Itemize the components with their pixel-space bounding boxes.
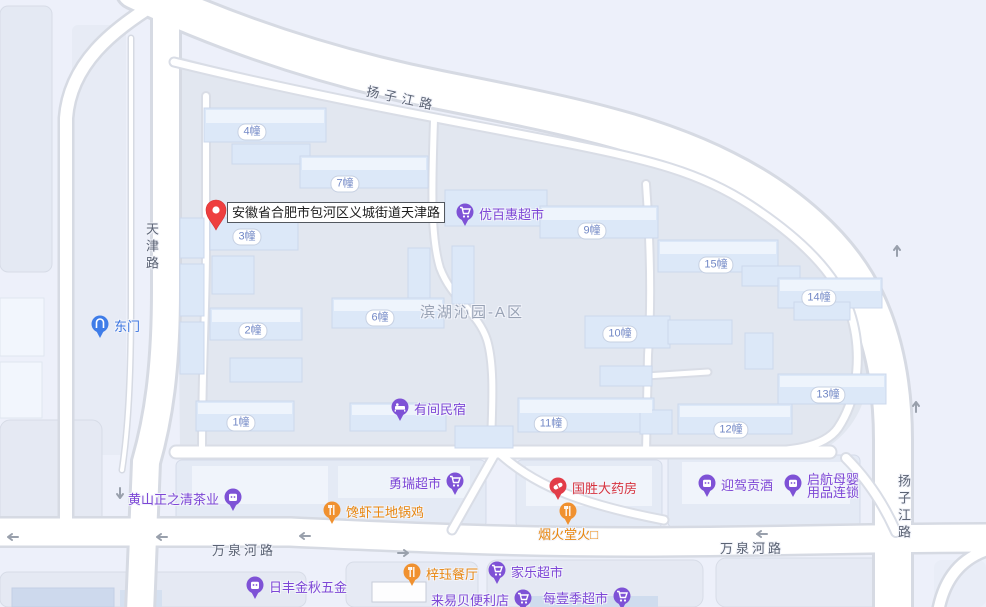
poi-huangshan-tea[interactable]: 黄山正之清茶业 xyxy=(128,487,243,513)
fork-knife-icon xyxy=(558,501,578,527)
poi-yanhuotang-hotpot[interactable]: 烟火堂火□ xyxy=(530,501,606,542)
map-canvas[interactable]: 扬子江路 扬子江路 天津路 万泉河路 万泉河路 滨湖沁园-A区 4幢 7幢 3幢… xyxy=(0,0,986,607)
address-label: 安徽省合肥市包河区义城街道天津路 xyxy=(227,202,445,223)
road-label-wanquanhe-west: 万泉河路 xyxy=(212,540,276,559)
poi-yongrui-market[interactable]: 勇瑞超市 xyxy=(389,471,465,497)
poi-youjian-hostel[interactable]: 有间民宿 xyxy=(390,397,466,423)
poi-east-gate[interactable]: 东门 xyxy=(90,314,140,340)
building-badge-7: 7幢 xyxy=(330,176,359,193)
building-badge-6: 6幢 xyxy=(365,310,394,327)
poi-jiale-market[interactable]: 家乐超市 xyxy=(487,560,563,586)
building-badge-9: 9幢 xyxy=(577,223,606,240)
capsule-icon xyxy=(548,476,568,502)
gate-icon xyxy=(90,314,110,340)
poi-label: 家乐超市 xyxy=(511,566,563,580)
shopping-cart-icon xyxy=(612,586,632,607)
poi-youbaihui-market[interactable]: 优百惠超市 xyxy=(455,202,544,228)
poi-meiyiji-market[interactable]: 每壹季超市 xyxy=(543,586,632,607)
poi-zijue-restaurant[interactable]: 梓珏餐厅 xyxy=(402,562,478,588)
building-badge-13: 13幢 xyxy=(810,387,845,404)
storefront-icon xyxy=(697,473,717,499)
building-badge-15: 15幢 xyxy=(698,257,733,274)
road-label-tianjin: 天津路 xyxy=(142,222,161,273)
poi-label: 优百惠超市 xyxy=(479,208,544,222)
poi-label: 东门 xyxy=(114,320,140,334)
building-badge-2: 2幢 xyxy=(238,323,267,340)
poi-label: 启航母婴 用品连锁 xyxy=(807,473,859,499)
fork-knife-icon xyxy=(402,562,422,588)
poi-rifeng-hardware[interactable]: 日丰金秋五金 xyxy=(245,575,347,601)
road-label-yangzijiang-right: 扬子江路 xyxy=(894,474,913,542)
building-badge-14: 14幢 xyxy=(801,290,836,307)
poi-label: 梓珏餐厅 xyxy=(426,568,478,582)
poi-label: 烟火堂火□ xyxy=(538,528,598,542)
location-pin-icon xyxy=(203,198,229,232)
destination-marker[interactable] xyxy=(203,198,229,232)
poi-label: 馋虾王地锅鸡 xyxy=(346,506,424,520)
poi-guosheng-pharmacy[interactable]: 国胜大药房 xyxy=(548,476,637,502)
poi-yingjia-liquor[interactable]: 迎驾贡酒 xyxy=(697,473,773,499)
road-label-wanquanhe-east: 万泉河路 xyxy=(720,538,784,557)
building-badge-3: 3幢 xyxy=(232,229,261,246)
area-label-binhuqinyuan: 滨湖沁园-A区 xyxy=(420,301,524,322)
shopping-cart-icon xyxy=(445,471,465,497)
poi-label: 有间民宿 xyxy=(414,403,466,417)
building-badge-10: 10幢 xyxy=(602,326,637,343)
building-badge-12: 12幢 xyxy=(713,422,748,439)
poi-qihang-baby-store[interactable]: 启航母婴 用品连锁 xyxy=(783,473,859,499)
poi-label: 来易贝便利店 xyxy=(431,594,509,607)
poi-label: 迎驾贡酒 xyxy=(721,479,773,493)
poi-chanxiawang-restaurant[interactable]: 馋虾王地锅鸡 xyxy=(322,500,424,526)
building-badge-11: 11幢 xyxy=(534,416,568,433)
shopping-cart-icon xyxy=(487,560,507,586)
poi-label: 日丰金秋五金 xyxy=(269,581,347,595)
building-badge-1: 1幢 xyxy=(226,415,255,432)
storefront-icon xyxy=(245,575,265,601)
poi-label: 国胜大药房 xyxy=(572,482,637,496)
shopping-cart-icon xyxy=(513,588,533,607)
bed-icon xyxy=(390,397,410,423)
building-badge-4: 4幢 xyxy=(237,124,266,141)
poi-label: 每壹季超市 xyxy=(543,592,608,606)
storefront-icon xyxy=(783,473,803,499)
shopping-cart-icon xyxy=(455,202,475,228)
poi-label: 黄山正之清茶业 xyxy=(128,493,219,507)
fork-knife-icon xyxy=(322,500,342,526)
storefront-icon xyxy=(223,487,243,513)
poi-label: 勇瑞超市 xyxy=(389,477,441,491)
poi-laiyibei-store[interactable]: 来易贝便利店 xyxy=(431,588,533,607)
